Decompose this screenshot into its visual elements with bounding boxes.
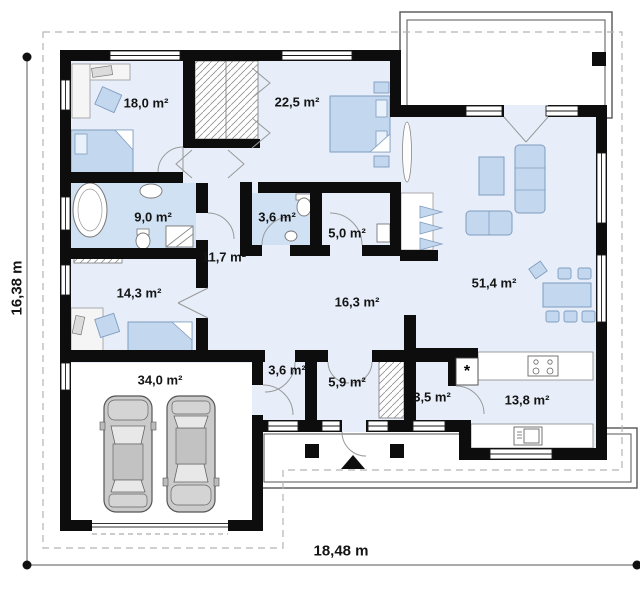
dimension-width-label: 18,48 m xyxy=(313,543,368,560)
room-label-utility: 3,5 m² xyxy=(413,390,451,405)
room-label-bathroom: 9,0 m² xyxy=(134,210,172,225)
room-label-entry: 5,9 m² xyxy=(328,375,366,390)
room-label-bedroom-2: 22,5 m² xyxy=(275,95,320,110)
room-label-bedroom-3: 14,3 m² xyxy=(117,286,162,301)
room-label-vestibule: 3,6 m² xyxy=(268,363,306,378)
garage-door xyxy=(92,520,228,534)
floor-plan: 18,0 m² 22,5 m² 9,0 m² 3,6 m² 5,0 m² 11,… xyxy=(0,0,640,594)
floor-plan-canvas xyxy=(0,0,640,594)
utility-star-marker: * xyxy=(464,363,470,381)
room-label-kitchen: 13,8 m² xyxy=(505,393,550,408)
room-label-pantry: 5,0 m² xyxy=(328,226,366,241)
car-left xyxy=(100,396,156,512)
dimension-height-label: 16,38 m xyxy=(9,260,26,315)
terrace xyxy=(400,12,612,118)
room-label-wc: 3,6 m² xyxy=(258,210,296,225)
room-label-bedroom-1: 18,0 m² xyxy=(124,96,169,111)
room-label-hall: 11,7 m² xyxy=(202,250,246,265)
car-right xyxy=(163,396,219,512)
room-label-garage: 34,0 m² xyxy=(138,373,183,388)
room-label-corridor: 16,3 m² xyxy=(335,295,380,310)
room-label-living: 51,4 m² xyxy=(472,276,517,291)
